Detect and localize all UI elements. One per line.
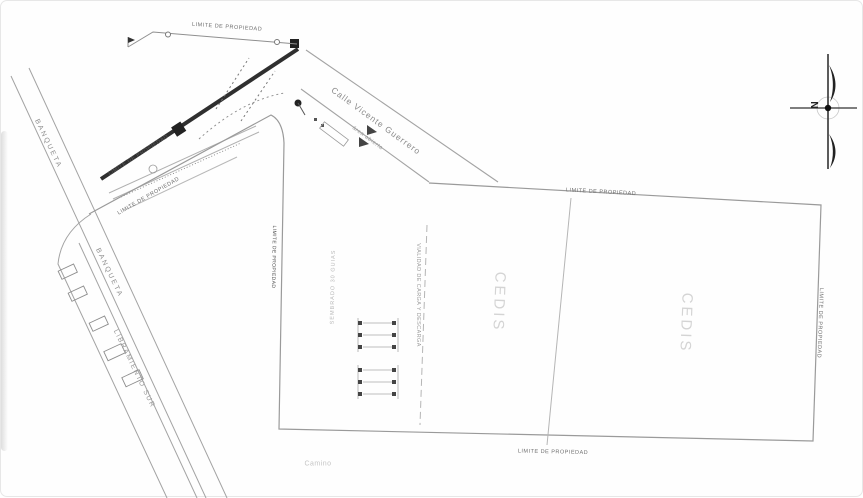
site-plan-sheet: LIMITE DE PROPIEDAD LIMITE DE PROPIEDAD … xyxy=(0,0,863,497)
parcel-outline xyxy=(89,115,821,441)
top-boundary xyxy=(128,32,297,47)
label-property-limit-parcel-left: LIMITE DE PROPIEDAD xyxy=(270,226,276,289)
north-arrow-icon xyxy=(790,54,857,169)
dock-tables xyxy=(358,318,398,399)
label-north: N xyxy=(808,101,818,108)
label-service-road: VIALIDAD DE CARGA Y DESCARGA xyxy=(414,243,420,347)
plan-linework xyxy=(1,1,863,498)
entrance-corridor xyxy=(101,39,324,209)
street-lines xyxy=(301,50,498,182)
label-property-limit-parcel-right: LIMITE DE PROPIEDAD xyxy=(815,288,823,358)
label-cedis-right: CEDIS xyxy=(677,292,694,353)
label-cedis-left: CEDIS xyxy=(490,271,507,332)
label-camino: Camino xyxy=(304,461,331,468)
